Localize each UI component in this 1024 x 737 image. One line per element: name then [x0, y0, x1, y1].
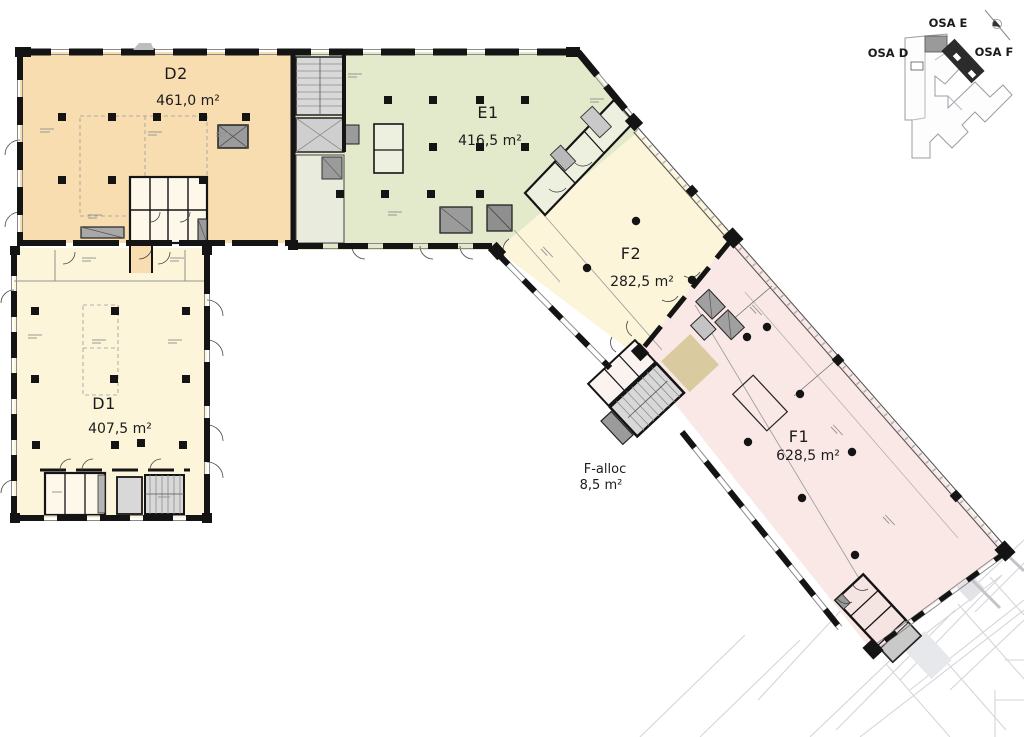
falloc-label: F-alloc [584, 462, 626, 477]
osa-f-label: OSA F [975, 45, 1014, 59]
zone-f2-code: F2 [621, 244, 641, 263]
zone-e1-area: 416,5 m² [458, 133, 522, 149]
zone-e1-code: E1 [477, 103, 498, 122]
core-between-d2-e1 [296, 57, 344, 243]
falloc-area: 8,5 m² [580, 478, 623, 493]
zone-d1-area: 407,5 m² [88, 421, 152, 437]
zone-d2-area: 461,0 m² [156, 93, 220, 109]
zone-d1-code: D1 [92, 394, 116, 413]
north-arrow-icon [985, 10, 1010, 40]
zone-f2-area: 282,5 m² [610, 274, 674, 290]
zone-d2-code: D2 [164, 64, 188, 83]
floor-plan-drawing: D2 461,0 m² E1 416,5 m² F2 282,5 m² D1 4… [0, 0, 1024, 737]
zone-f1-code: F1 [789, 427, 809, 446]
osa-e-label: OSA E [929, 16, 968, 30]
wc-cluster-d2 [130, 177, 207, 243]
zone-f1-area: 628,5 m² [776, 448, 840, 464]
osa-d-label: OSA D [868, 46, 909, 60]
floor-plan-sheet: D2 461,0 m² E1 416,5 m² F2 282,5 m² D1 4… [0, 0, 1024, 737]
key-plan-osa-d-marker [911, 62, 923, 70]
key-plan: OSA E OSA D OSA F [868, 10, 1014, 158]
